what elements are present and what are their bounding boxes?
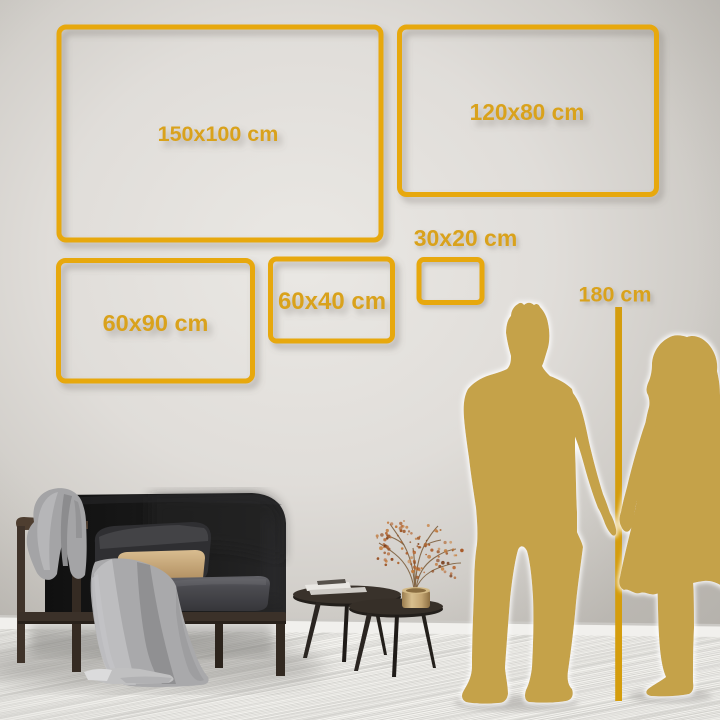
svg-text:60x90 cm: 60x90 cm: [103, 310, 209, 336]
svg-text:150x100 cm: 150x100 cm: [158, 122, 279, 146]
svg-text:60x40 cm: 60x40 cm: [278, 288, 386, 315]
svg-text:180 cm: 180 cm: [579, 283, 652, 307]
svg-text:30x20 cm: 30x20 cm: [414, 225, 518, 251]
svg-text:120x80 cm: 120x80 cm: [470, 99, 585, 125]
